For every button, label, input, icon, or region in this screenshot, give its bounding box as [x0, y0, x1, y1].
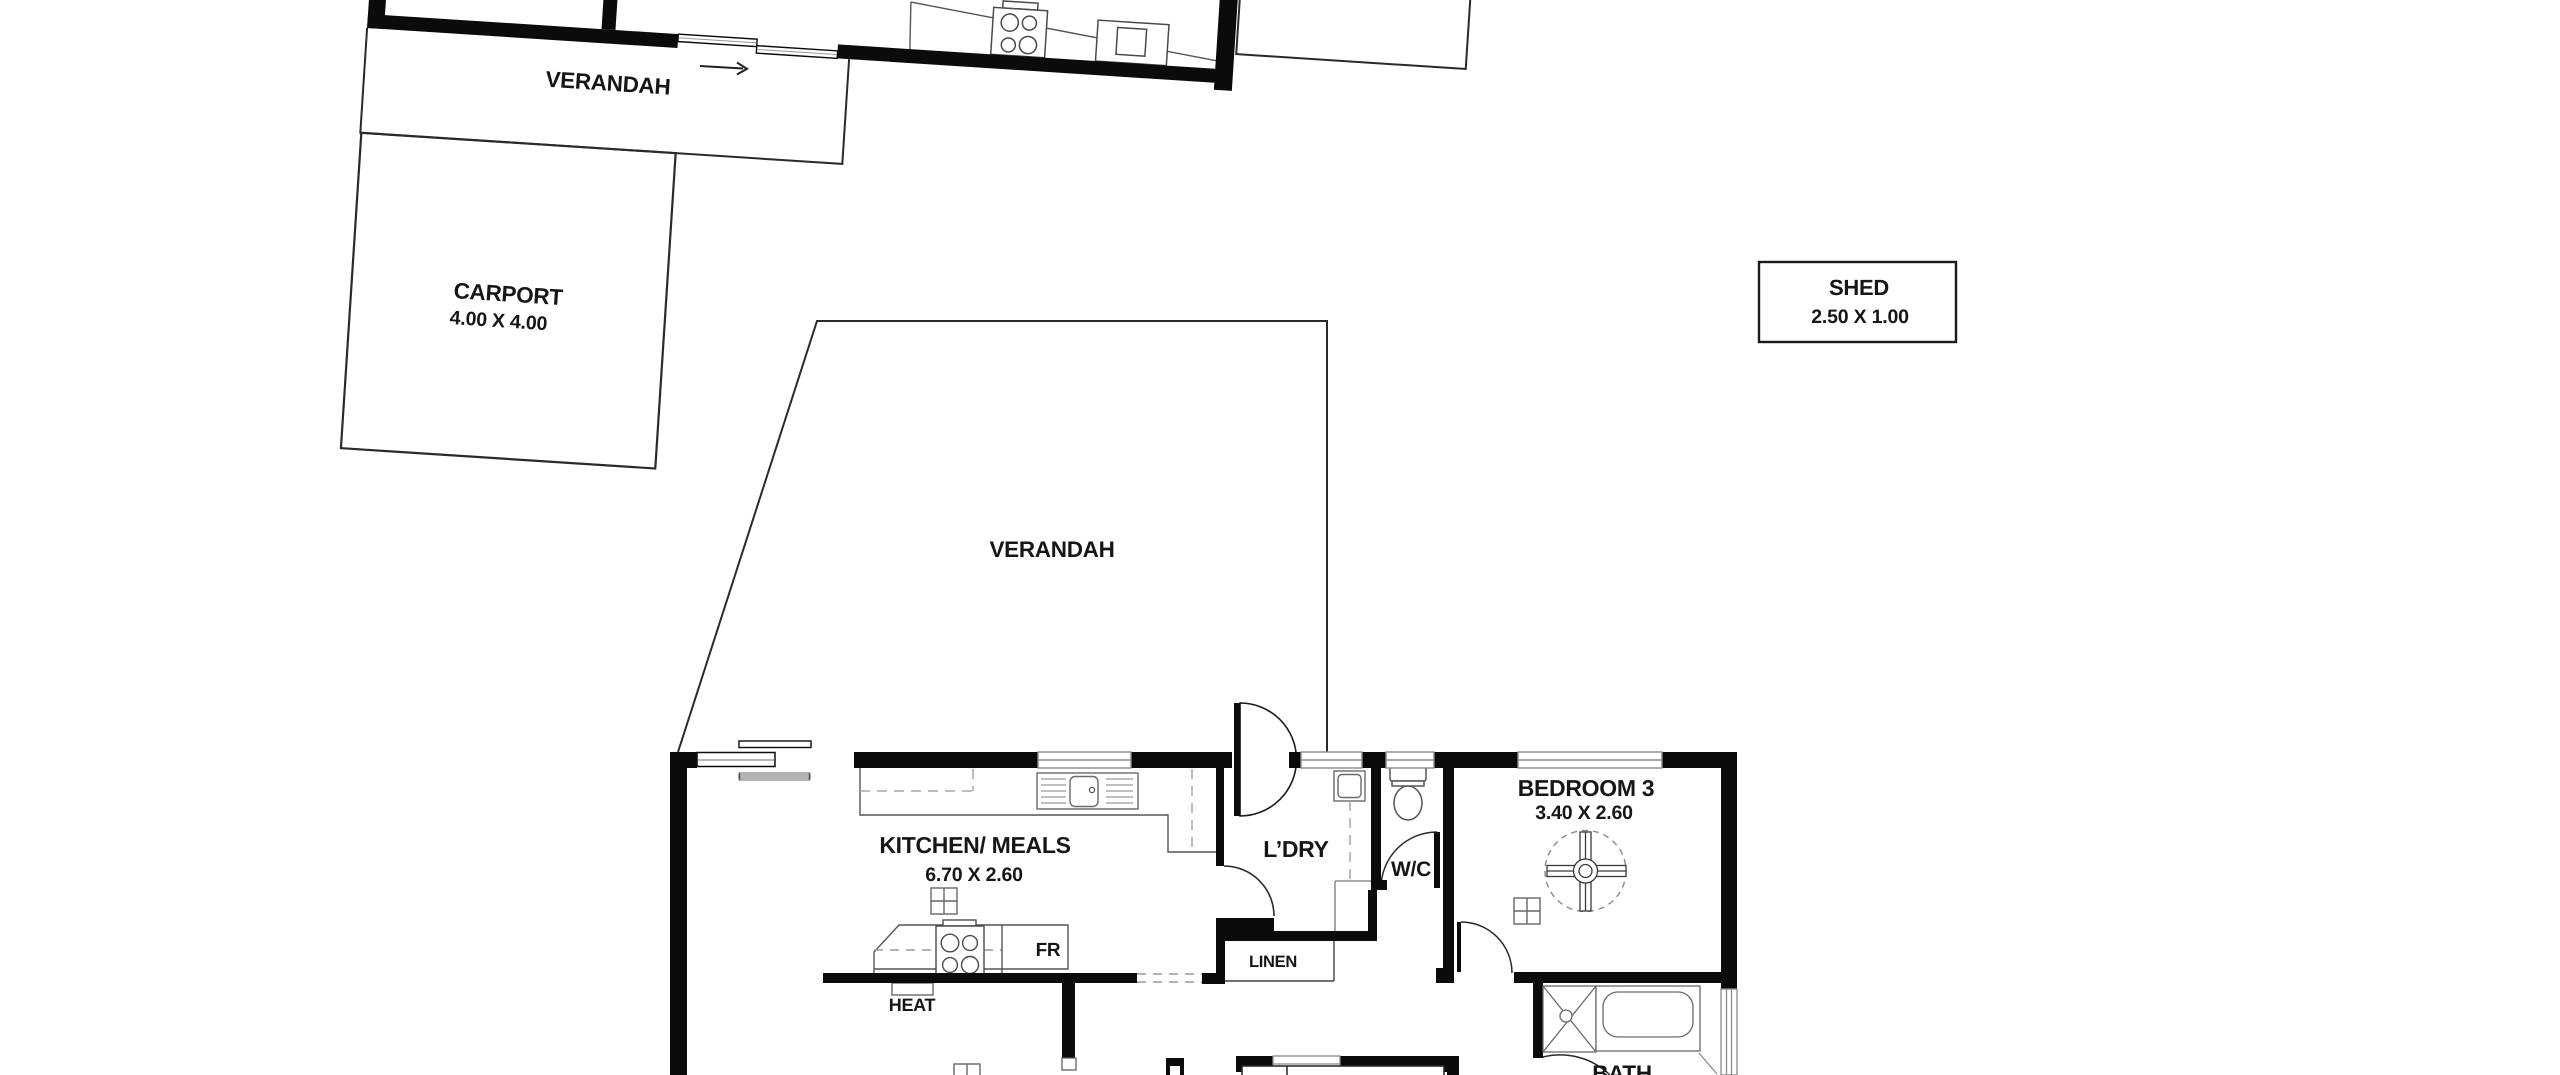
svg-text:SHED: SHED: [1829, 275, 1889, 300]
svg-text:FR: FR: [1036, 940, 1061, 961]
svg-text:KITCHEN/ MEALS: KITCHEN/ MEALS: [879, 832, 1070, 858]
svg-text:LINEN: LINEN: [1249, 953, 1297, 971]
svg-text:BATH: BATH: [1592, 1061, 1652, 1075]
svg-text:BEDROOM 3: BEDROOM 3: [1518, 775, 1655, 801]
svg-text:W/C: W/C: [1391, 858, 1431, 881]
svg-text:3.40 X 2.60: 3.40 X 2.60: [1535, 802, 1633, 824]
svg-text:6.70 X 2.60: 6.70 X 2.60: [925, 864, 1023, 886]
svg-text:HEAT: HEAT: [889, 995, 936, 1015]
svg-text:L’DRY: L’DRY: [1263, 836, 1328, 862]
svg-text:VERANDAH: VERANDAH: [989, 537, 1114, 562]
svg-text:2.50 X 1.00: 2.50 X 1.00: [1811, 306, 1909, 328]
